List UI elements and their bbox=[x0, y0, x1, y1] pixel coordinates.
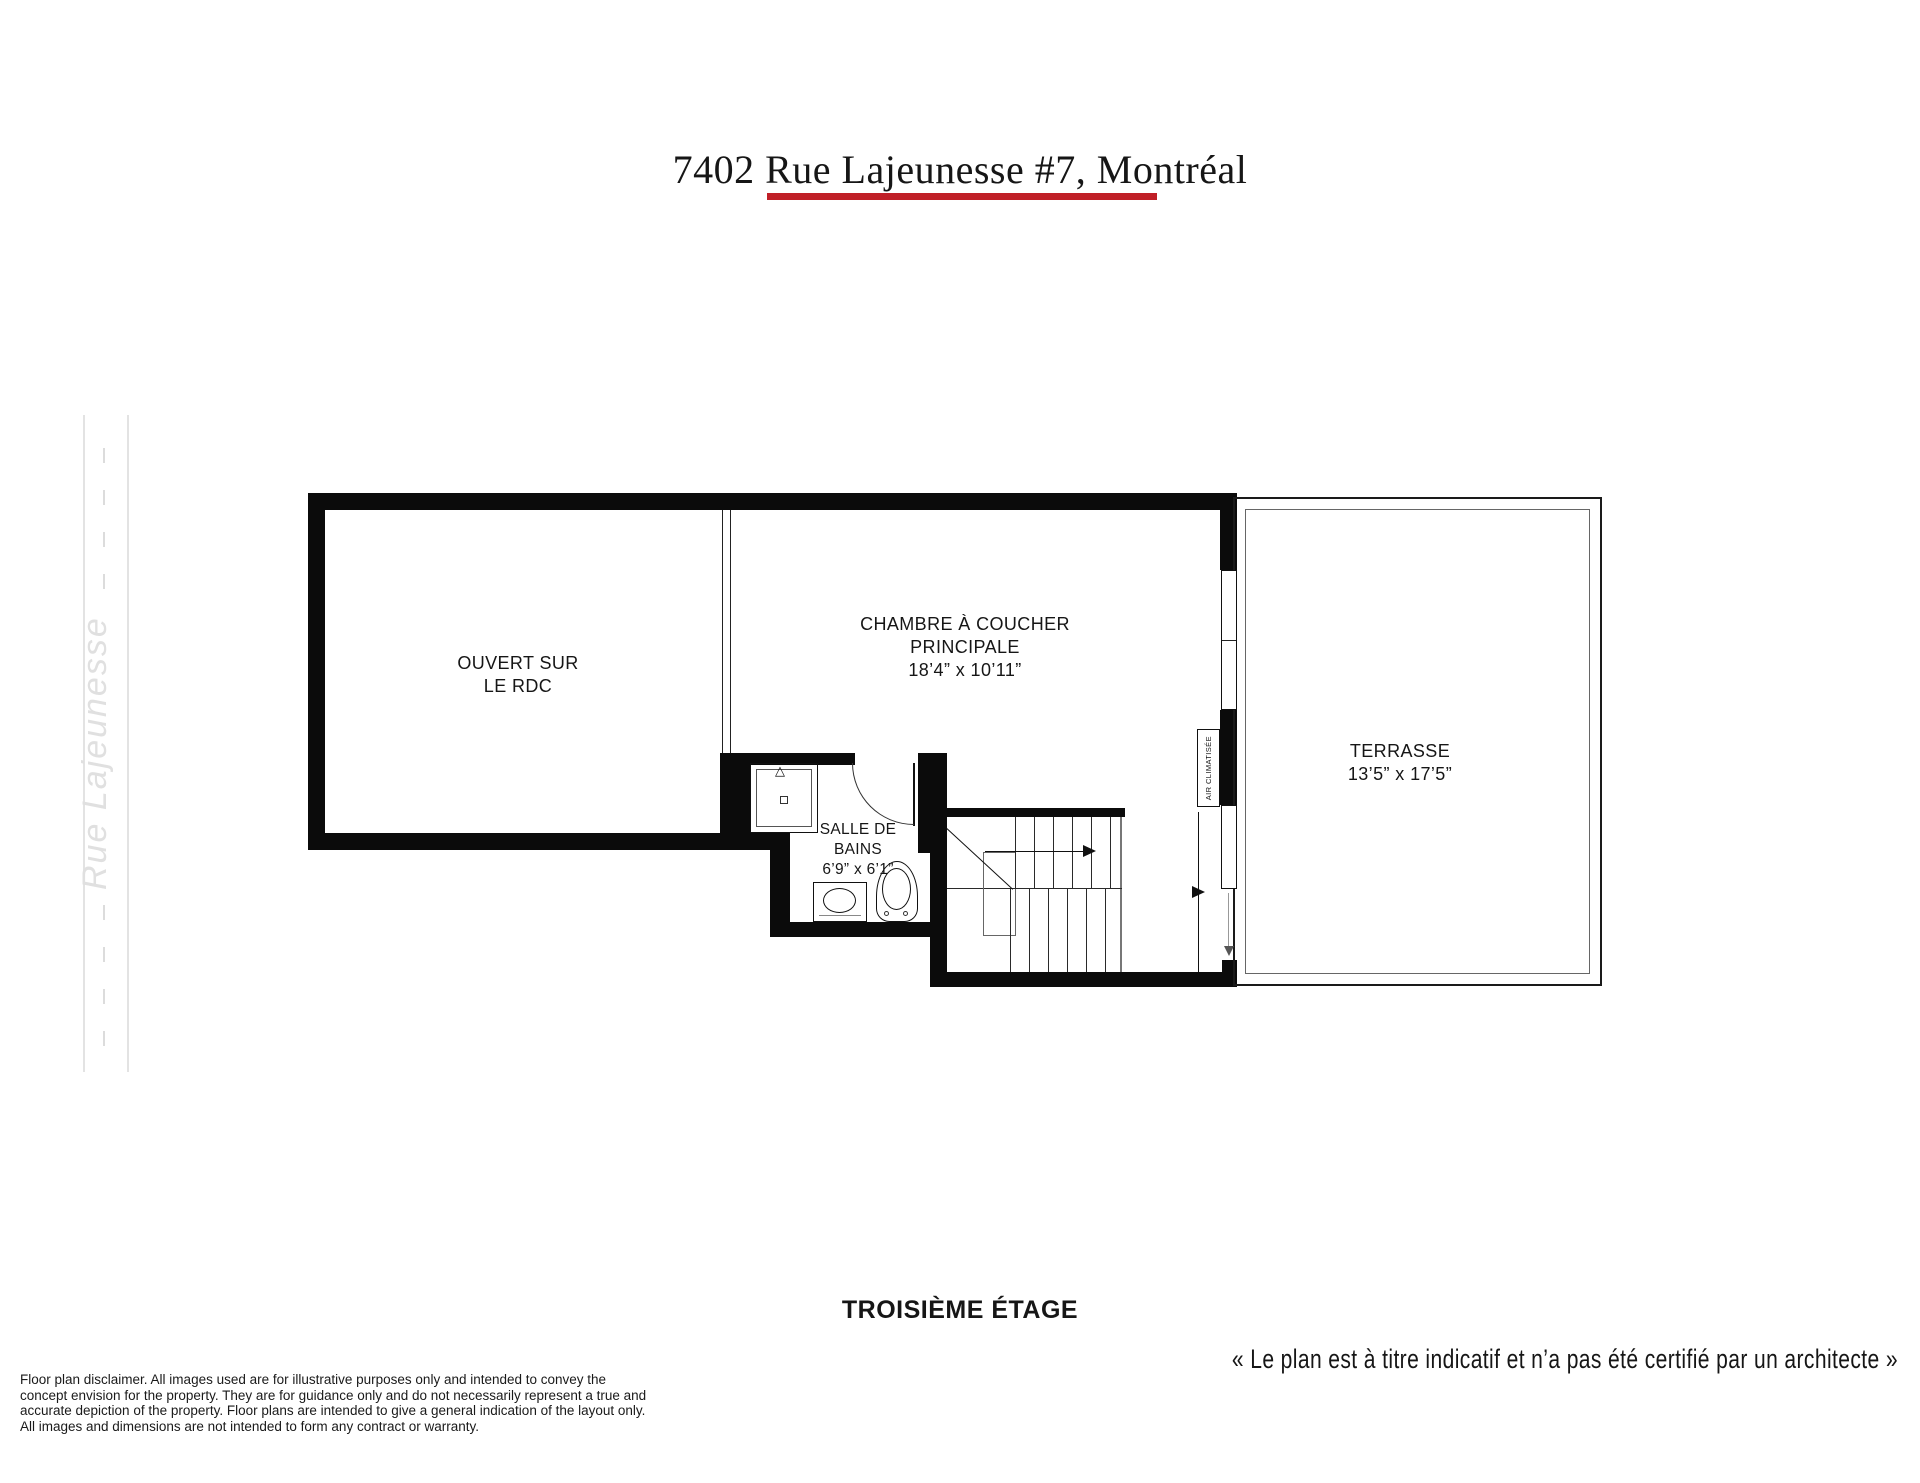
stairs-direction-arrow-icon bbox=[1083, 845, 1096, 857]
bathroom-line2: BAINS bbox=[788, 840, 928, 860]
open-area-label: OUVERT SUR LE RDC bbox=[408, 652, 628, 698]
wall-bottom bbox=[930, 972, 1237, 987]
disclaimer-line: accurate depiction of the property. Floo… bbox=[20, 1403, 646, 1419]
stair-tread bbox=[1086, 889, 1087, 972]
wall-top bbox=[308, 493, 1237, 510]
bathroom-dimensions: 6’9” x 6’1” bbox=[788, 860, 928, 880]
disclaimer-line: Floor plan disclaimer. All images used a… bbox=[20, 1372, 646, 1388]
wall-left bbox=[308, 493, 325, 850]
bathroom-label: SALLE DE BAINS 6’9” x 6’1” bbox=[788, 820, 928, 880]
sink-edge-line bbox=[819, 915, 861, 916]
window-lower bbox=[1221, 805, 1237, 889]
stair-tread bbox=[1105, 889, 1106, 972]
bedroom-label: CHAMBRE À COUCHER PRINCIPALE 18’4” x 10’… bbox=[815, 613, 1115, 682]
architect-quote: « Le plan est à titre indicatif et n’a p… bbox=[1232, 1344, 1898, 1375]
stair-tread bbox=[1010, 889, 1011, 972]
stair-tread bbox=[1053, 817, 1054, 889]
corridor-arrow-icon bbox=[1192, 886, 1205, 898]
bedroom-line2: PRINCIPALE bbox=[815, 636, 1115, 659]
bathroom-door-swing-arc bbox=[852, 763, 914, 825]
road-edge-line-right bbox=[127, 415, 129, 1072]
shower-head-icon: △ bbox=[775, 764, 785, 777]
road-center-dashes-top bbox=[103, 448, 105, 608]
wall-bottom-left-room bbox=[308, 833, 790, 850]
terrace-dimensions: 13’5” x 17’5” bbox=[1290, 763, 1510, 786]
stair-tread bbox=[1067, 889, 1068, 972]
shower-drain-icon bbox=[780, 796, 788, 804]
bedroom-dimensions: 18’4” x 10’11” bbox=[815, 659, 1115, 682]
stair-tread bbox=[1034, 817, 1035, 889]
bathroom-vanity bbox=[813, 882, 867, 922]
bathroom-line1: SALLE DE bbox=[788, 820, 928, 840]
air-conditioner-unit: AIR CLIMATISÉE bbox=[1197, 729, 1220, 807]
stair-tread bbox=[1029, 889, 1030, 972]
terrace-path-line bbox=[1228, 893, 1229, 947]
stair-tread bbox=[1048, 889, 1049, 972]
wall-stairs-left bbox=[930, 817, 947, 987]
wall-bathroom-left bbox=[770, 850, 790, 925]
disclaimer-line: All images and dimensions are not intend… bbox=[20, 1419, 646, 1435]
disclaimer-line: concept envision for the property. They … bbox=[20, 1388, 646, 1404]
air-conditioner-label: AIR CLIMATISÉE bbox=[1204, 736, 1213, 800]
stairs-right-edge bbox=[1120, 817, 1122, 972]
disclaimer-text: Floor plan disclaimer. All images used a… bbox=[20, 1372, 646, 1434]
wall-bathroom-bottom bbox=[770, 922, 930, 937]
wall-stairs-top bbox=[947, 808, 1125, 817]
window-upper-divider bbox=[1222, 640, 1236, 641]
toilet-hinge-right bbox=[903, 911, 908, 916]
street-name-label: Rue Lajeunesse bbox=[76, 645, 120, 890]
stairs-direction-line bbox=[985, 851, 1085, 852]
road-center-dashes-bottom bbox=[103, 905, 105, 1067]
title-underline bbox=[767, 193, 1157, 200]
page-title: 7402 Rue Lajeunesse #7, Montréal bbox=[0, 146, 1920, 193]
stair-tread bbox=[1015, 817, 1016, 889]
sink-bowl bbox=[823, 888, 856, 913]
terrace-label: TERRASSE 13’5” x 17’5” bbox=[1290, 740, 1510, 786]
terrace-path-arrow-icon bbox=[1224, 946, 1234, 956]
wall-divider-open-bath bbox=[720, 753, 750, 850]
floor-title: TROISIÈME ÉTAGE bbox=[0, 1296, 1920, 1325]
stair-tread bbox=[1072, 817, 1073, 889]
open-area-line2: LE RDC bbox=[408, 675, 628, 698]
stair-tread bbox=[1110, 817, 1111, 889]
railing-open-to-below bbox=[722, 510, 731, 753]
toilet-hinge-left bbox=[884, 911, 889, 916]
bedroom-line1: CHAMBRE À COUCHER bbox=[815, 613, 1115, 636]
terrace-line1: TERRASSE bbox=[1290, 740, 1510, 763]
open-area-line1: OUVERT SUR bbox=[408, 652, 628, 675]
floor-plan-page: { "title": { "text": "7402 Rue Lajeuness… bbox=[0, 0, 1920, 1483]
stairs-landing-box bbox=[983, 852, 1016, 936]
